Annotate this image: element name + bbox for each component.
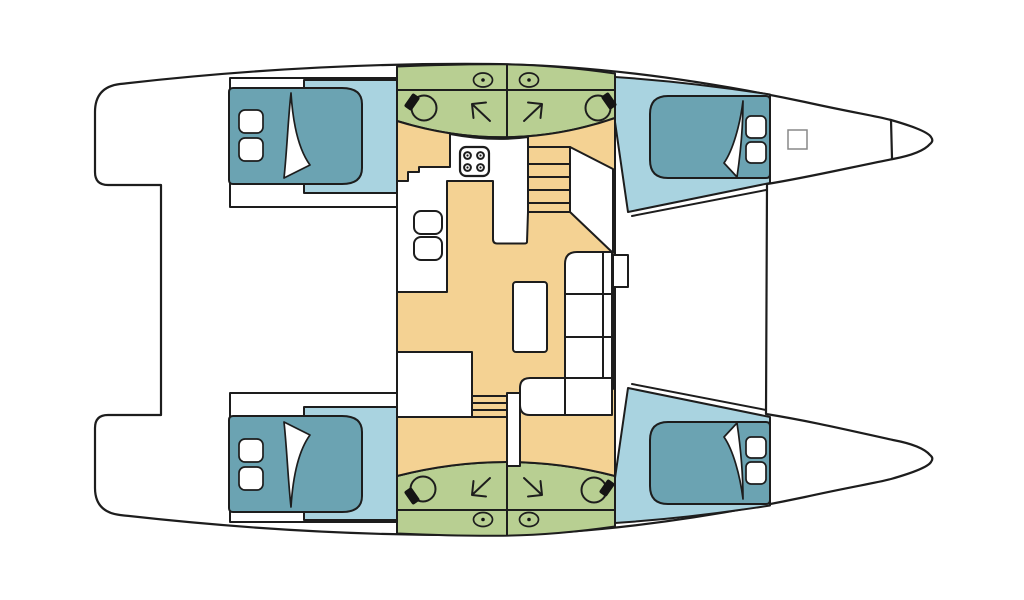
stair-strip-starboard [507, 393, 520, 466]
pillow [746, 142, 766, 163]
pillow [746, 116, 766, 138]
galley-peninsula [448, 183, 492, 243]
chart-seat-2 [414, 237, 442, 260]
galley-counter-aft [397, 352, 472, 417]
chart-seat-1 [414, 211, 442, 234]
salon-table [513, 282, 547, 352]
staircase-port [528, 147, 570, 212]
pillow [239, 439, 263, 462]
floor-plan-canvas [0, 0, 1024, 600]
sofa-column [565, 252, 612, 378]
stove-top [460, 147, 489, 176]
pillow [746, 437, 766, 458]
pillow [746, 462, 766, 484]
stove [460, 147, 489, 176]
pillow [239, 110, 263, 133]
pillow [239, 138, 263, 161]
forward-door-notch [613, 255, 628, 287]
pillow [239, 467, 263, 490]
bow-chord-line [891, 120, 892, 158]
catamaran-floor-plan [0, 0, 1024, 600]
deck-hatch-icon [788, 130, 807, 149]
